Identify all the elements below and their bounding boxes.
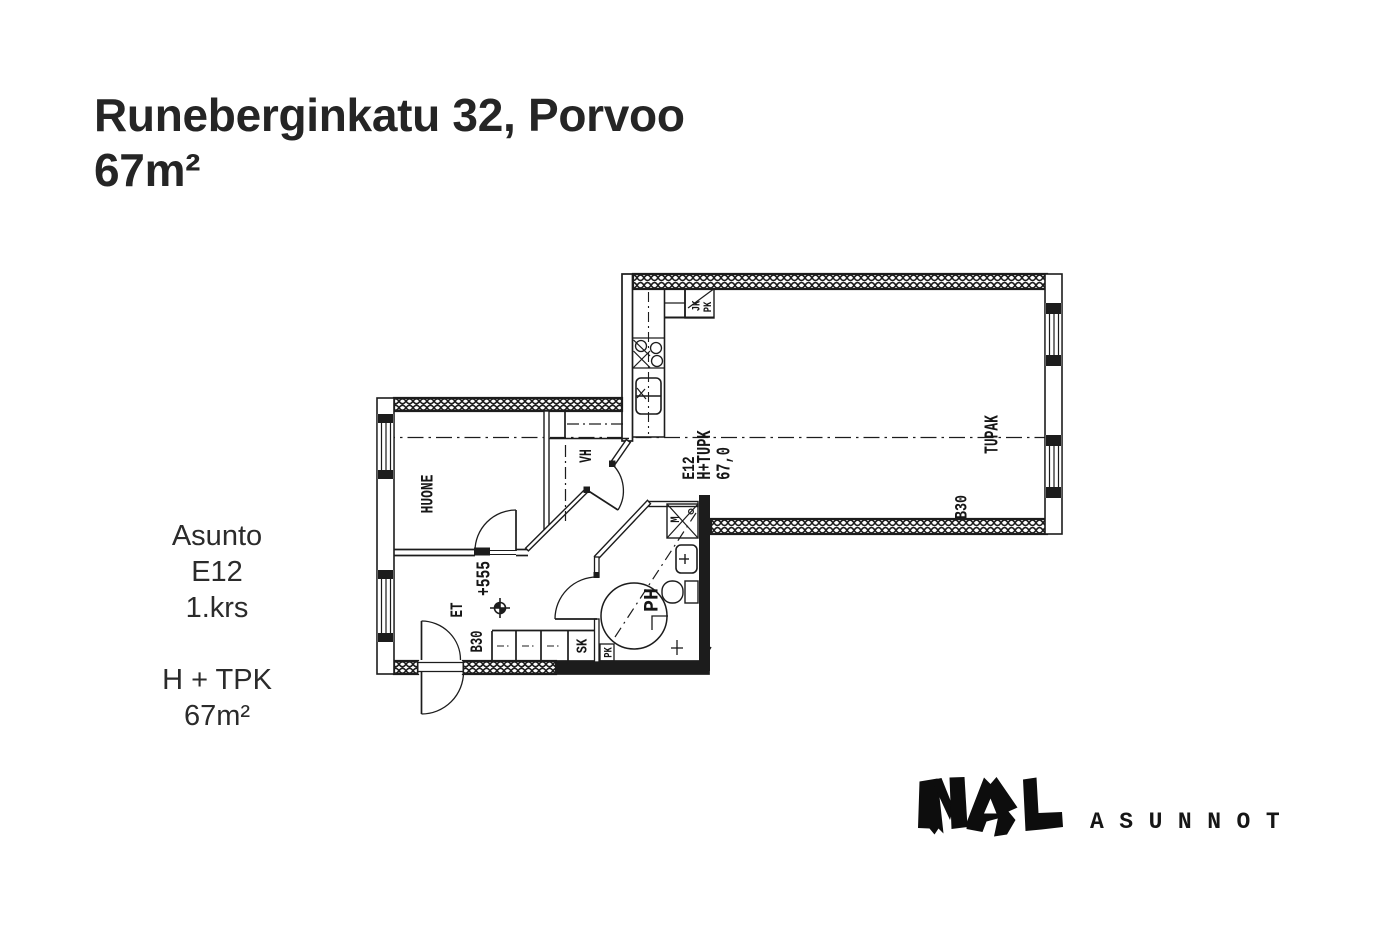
svg-text:B30: B30 <box>467 630 488 652</box>
svg-text:VH: VH <box>578 449 597 462</box>
svg-text:PH: PH <box>642 588 665 612</box>
svg-text:PK: PK <box>603 647 615 658</box>
svg-text:B30: B30 <box>952 495 972 519</box>
svg-text:PK: PK <box>702 302 714 313</box>
svg-text:ET: ET <box>447 602 468 617</box>
svg-text:SK: SK <box>575 638 592 653</box>
svg-text:HUONE: HUONE <box>418 475 439 514</box>
svg-text:67,0: 67,0 <box>713 447 735 480</box>
svg-text:TUPAK: TUPAK <box>981 415 1003 454</box>
svg-text:JK: JK <box>691 301 703 312</box>
svg-text:+555: +555 <box>475 561 496 596</box>
svg-text:M: M <box>668 516 683 522</box>
svg-text:ASUNNOT: ASUNNOT <box>1090 809 1295 835</box>
